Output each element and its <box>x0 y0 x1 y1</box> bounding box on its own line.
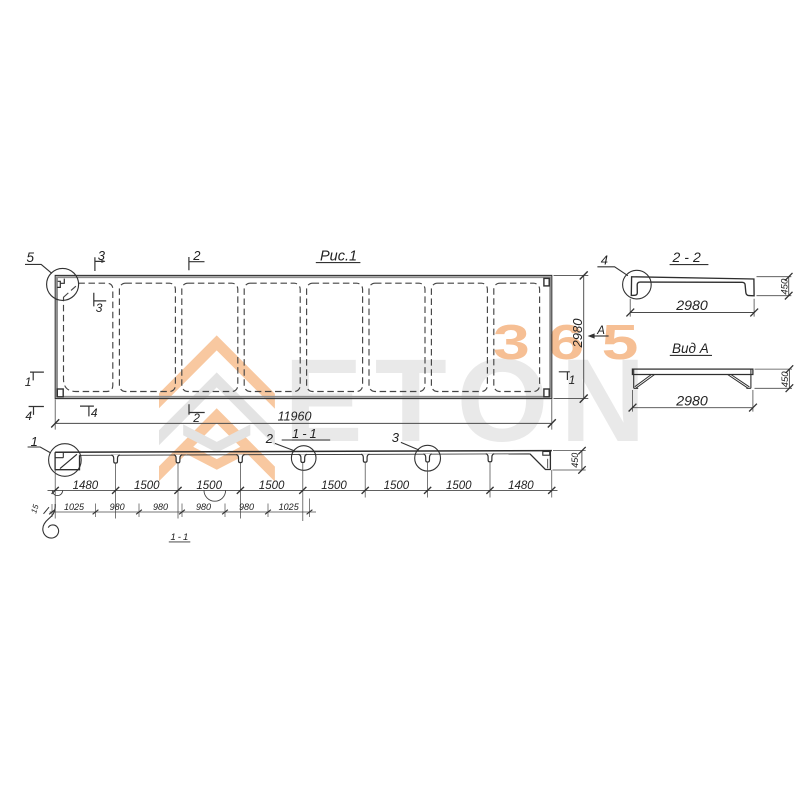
svg-text:450: 450 <box>780 278 791 295</box>
svg-text:4: 4 <box>91 406 98 420</box>
svg-text:1025: 1025 <box>64 502 85 512</box>
svg-text:2: 2 <box>265 431 274 446</box>
svg-text:4: 4 <box>601 253 608 268</box>
svg-text:1500: 1500 <box>134 480 160 492</box>
svg-text:2980: 2980 <box>675 394 708 410</box>
svg-text:11960: 11960 <box>278 410 312 424</box>
svg-text:Вид А: Вид А <box>672 341 709 356</box>
svg-text:2-2: 2-2 <box>672 249 705 265</box>
svg-text:980: 980 <box>153 502 168 512</box>
svg-text:980: 980 <box>239 502 254 512</box>
svg-text:1-1: 1-1 <box>292 426 320 441</box>
svg-text:2: 2 <box>192 411 200 425</box>
svg-text:1500: 1500 <box>259 480 285 492</box>
svg-text:980: 980 <box>196 502 211 512</box>
svg-text:2: 2 <box>192 248 201 263</box>
svg-text:1500: 1500 <box>384 480 410 492</box>
svg-text:1500: 1500 <box>321 480 347 492</box>
svg-text:450: 450 <box>570 453 580 468</box>
svg-text:А: А <box>596 325 605 337</box>
svg-text:1: 1 <box>25 375 32 389</box>
svg-text:1: 1 <box>569 373 576 387</box>
svg-text:4: 4 <box>25 409 32 423</box>
svg-text:1480: 1480 <box>508 480 534 492</box>
svg-text:450: 450 <box>780 371 791 388</box>
svg-text:1500: 1500 <box>196 480 222 492</box>
svg-text:1500: 1500 <box>446 480 472 492</box>
svg-text:3: 3 <box>392 430 400 445</box>
svg-text:3: 3 <box>98 248 106 263</box>
svg-text:1480: 1480 <box>73 480 99 492</box>
svg-text:1025: 1025 <box>279 502 300 512</box>
svg-text:980: 980 <box>110 502 125 512</box>
svg-text:3: 3 <box>96 301 103 315</box>
svg-text:2980: 2980 <box>675 298 708 314</box>
svg-text:2980: 2980 <box>570 318 585 349</box>
svg-text:5: 5 <box>27 250 35 265</box>
